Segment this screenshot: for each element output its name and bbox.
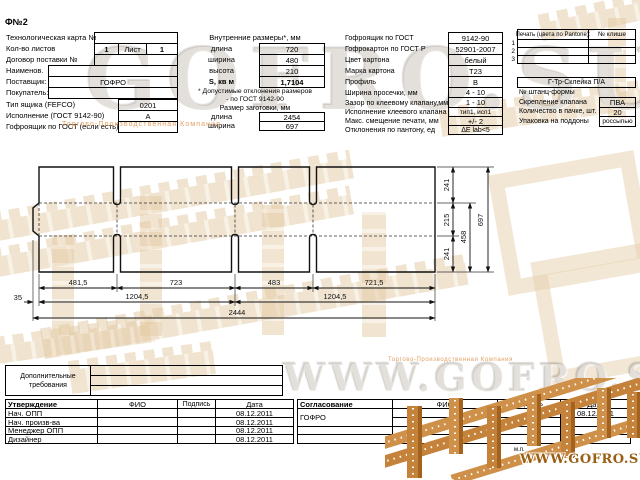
cliche-cell <box>588 55 636 64</box>
crease-lines <box>39 203 435 236</box>
gluing-label: Упаковка на поддоны <box>519 116 589 126</box>
spec-label: Профиль <box>345 76 376 87</box>
half-total-label: 1204,5 <box>126 292 149 301</box>
gluing-label: Количество в пачке, шт. <box>519 107 596 116</box>
document-page: GOFRO.SU WWW.GOFRO.SU Торгово-Производст… <box>0 0 640 480</box>
print-row-number: 2 <box>506 47 515 55</box>
spec-label: Гофрокартон по ГОСТ Р <box>345 43 426 54</box>
print-row-number: 3 <box>506 55 515 63</box>
height-label: 215 <box>442 214 451 227</box>
form-title: Ф№2 <box>5 17 28 27</box>
agreement-empty-cell <box>297 434 393 444</box>
body-height-label: 458 <box>459 231 468 244</box>
agreement-org: ГОФРО <box>297 408 393 427</box>
panel-width-label: 483 <box>268 278 281 287</box>
total-width-label: 2444 <box>229 308 246 317</box>
height-label: 241 <box>442 248 451 261</box>
inner-dims-header: Внутренние размеры*, мм <box>185 32 325 43</box>
print-color-cell <box>517 55 589 64</box>
gluing-label: № штанц-формы <box>519 87 575 97</box>
print-row-number: 1 <box>506 39 515 47</box>
spec-value: ΔЕ lab<5 <box>448 125 503 135</box>
approval-role: Дизайнер <box>5 434 98 444</box>
additional-requirements-line <box>90 385 283 396</box>
spec-label: Исполнение клеевого клапана <box>345 107 447 116</box>
field-label: Тип ящика (FEFCO) <box>6 99 75 110</box>
field-label: Исполнение (ГОСТ 9142-90) <box>6 110 104 121</box>
gluing-value: россыпью <box>599 116 636 127</box>
glue-flap-label: 35 <box>14 293 22 302</box>
extension-lines <box>33 167 494 321</box>
additional-line1: Дополнительные <box>20 372 75 381</box>
height-label: 241 <box>442 179 451 192</box>
dimension-labels: 481,5 723 483 721,5 35 1204,5 1204,5 244… <box>14 179 485 317</box>
approval-date: 08.12.2011 <box>215 434 294 444</box>
spec-label: Марка картона <box>345 65 395 76</box>
spec-label: Цвет картона <box>345 54 389 65</box>
dim-label: длина <box>185 112 258 121</box>
additional-requirements-label: Дополнительные требования <box>5 365 91 396</box>
panel-width-label: 723 <box>170 278 183 287</box>
dimension-lines <box>24 167 488 318</box>
approval-fio <box>97 434 178 444</box>
field-label: Кол-во листов <box>6 43 55 54</box>
company-watermark-2: Торгово-Производственная Компания <box>388 357 513 363</box>
field-label: Покупатель: <box>6 87 48 98</box>
dim-label: длина <box>185 43 258 54</box>
blank-drawing: 481,5 723 483 721,5 35 1204,5 1204,5 244… <box>0 140 520 340</box>
dim-label: ширина <box>185 54 258 65</box>
field-value <box>48 87 178 99</box>
panel-width-label: 481,5 <box>69 278 88 287</box>
panel-width-label: 721,5 <box>365 278 384 287</box>
blank-size-header: Размер заготовки, мм <box>185 104 325 112</box>
tolerance-note-2: - по ГОСТ 9142-90 <box>185 95 325 104</box>
field-label: Наименов. <box>6 65 44 76</box>
approval-sign <box>177 434 216 444</box>
logo-rail <box>451 416 640 480</box>
blank-outline <box>33 167 435 272</box>
spec-label: Макс. смещение печати, мм <box>345 116 439 125</box>
spec-label: Гофроящик по ГОСТ <box>345 32 414 43</box>
blank-width-value: 697 <box>259 121 325 131</box>
field-label: Поставщик: <box>6 76 47 87</box>
total-height-label: 697 <box>476 214 485 227</box>
additional-line2: требования <box>29 381 67 390</box>
field-label: Договор поставки № <box>6 54 78 65</box>
field-label: Технологическая карта № <box>6 32 97 43</box>
company-watermark: Торгово-Производственная Компания <box>62 121 221 128</box>
area-label: S, кв м <box>185 76 258 87</box>
site-url: WWW.GOFRO.SU <box>520 452 640 467</box>
spec-label: Ширина просечки, мм <box>345 87 418 97</box>
dim-label: высота <box>185 65 258 76</box>
gluing-label: Скрепление клапана <box>519 97 587 107</box>
spec-label: Отклонения по пантону, ед <box>345 125 435 134</box>
half-total-label: 1204,5 <box>324 292 347 301</box>
spec-label: Зазор по клеевому клапану,мм <box>345 97 448 107</box>
